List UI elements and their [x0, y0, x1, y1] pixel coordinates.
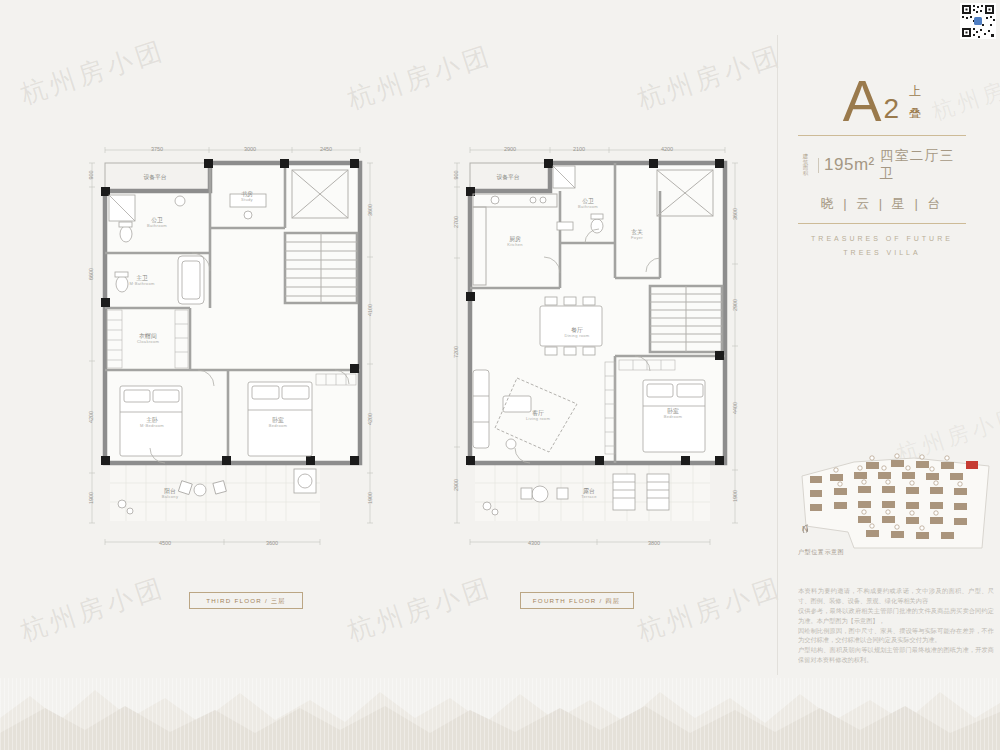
north-arrow-icon [802, 524, 808, 533]
dimension-label: 6600 [87, 268, 93, 280]
watermark: 杭州房小团 [343, 38, 496, 118]
stack-bottom: 叠 [909, 105, 921, 122]
third-floor-tag: THIRD FLOOR / 三层 [189, 592, 303, 609]
divider-rule [798, 135, 966, 136]
dimension-label: 3600 [266, 540, 278, 546]
floorplan-poster: 杭州房小团 杭州房小团 杭州房小团 杭州房小团 杭州房小团 杭州房小团 杭州房小… [0, 0, 1000, 750]
dimension-label: 3000 [244, 146, 256, 152]
floor-tag-cn: 三层 [271, 597, 286, 604]
area-line: 建筑 面积 195m² 四室二厅三卫 [798, 144, 966, 186]
room-label: 厨房Kitchen [507, 236, 523, 247]
dimension-label: 4200 [367, 413, 373, 425]
dimension-label: 2100 [573, 146, 585, 152]
info-panel: A 2 上 叠 建筑 面积 195m² 四室二厅三卫 晓 | 云 | 星 | 台… [798, 76, 966, 259]
dimension-label: 900 [452, 170, 458, 179]
room-label: 设备平台 [143, 173, 166, 180]
watermark: 杭州房小团 [343, 570, 496, 650]
fourth-floor-labels: 设备平台厨房Kitchen公卫Bathroom玄关Foyer餐厅Dining r… [445, 138, 745, 568]
vertical-divider [777, 35, 778, 675]
unit-title: A 2 上 叠 [798, 76, 966, 125]
siteplan-caption: 户型位置示意图 [798, 548, 844, 556]
area-divider [818, 158, 819, 173]
room-label: 设备平台 [496, 173, 519, 180]
dimension-label: 3600 [732, 208, 738, 220]
watermark: 杭州房小团 [16, 33, 169, 113]
room-label: 书房Study [241, 190, 253, 201]
slogan: 晓 | 云 | 星 | 台 [798, 195, 966, 213]
floor-tag-en: FOURTH FLOOR [533, 597, 597, 604]
area-value: 195m² [824, 155, 875, 175]
room-label: 公卫Bathroom [578, 197, 598, 208]
dimension-label: 4100 [367, 304, 373, 316]
qr-code [960, 3, 996, 39]
room-label: 露台Terrace [581, 487, 597, 498]
third-floor-plan: 设备平台书房Study公卫Bathroom主卫M·Bathroom衣帽间Cloa… [80, 138, 380, 568]
disclaimer: 本资料为要约邀请，不构成要约或承诺，文中涉及的面积、户型、尺寸、图例、装修、设备… [798, 586, 994, 664]
room-label: 卧室Bedroom [269, 416, 288, 427]
room-label: 卧室Bedroom [664, 408, 683, 419]
floor-tag-en: THIRD FLOOR [206, 597, 262, 604]
dimension-label: 1900 [367, 492, 373, 504]
dimension-label: 2450 [320, 146, 332, 152]
dimension-label: 2900 [504, 146, 516, 152]
stack-top: 上 [909, 83, 921, 100]
floor-tag-sep: / [600, 597, 603, 604]
unit-stack: 上 叠 [909, 83, 921, 122]
dimension-label: 900 [87, 170, 93, 179]
dimension-label: 2900 [732, 299, 738, 311]
north-indicator: N [802, 524, 808, 533]
fourth-floor-tag: FOURTH FLOOR / 四层 [520, 592, 634, 609]
room-label: 公卫Bathroom [147, 216, 167, 227]
tagline-line2: TREES VILLA [798, 246, 966, 259]
siteplan: N 户型位置示意图 [796, 446, 996, 561]
divider-rule [798, 223, 966, 224]
fourth-floor-plan: 设备平台厨房Kitchen公卫Bathroom玄关Foyer餐厅Dining r… [445, 138, 745, 568]
dimension-label: 4400 [732, 401, 738, 413]
room-label: 玄关Foyer [631, 229, 643, 240]
unit-number: 2 [884, 95, 900, 123]
dimension-label: 4300 [528, 540, 540, 546]
room-label: 主卧M·Bedroom [140, 416, 164, 427]
third-floor-labels: 设备平台书房Study公卫Bathroom主卫M·Bathroom衣帽间Cloa… [80, 138, 380, 568]
mountain-border-decoration [0, 678, 1000, 750]
room-label: 餐厅Dining room [564, 326, 589, 337]
room-label: 衣帽间Cloakroom [136, 332, 158, 343]
unit-letter: A [843, 76, 882, 125]
dimension-label: 1900 [87, 492, 93, 504]
watermark: 杭州房小团 [16, 570, 169, 650]
siteplan-map [796, 446, 996, 561]
dimension-label: 2900 [452, 479, 458, 491]
watermark: 杭州房小团 [633, 38, 786, 118]
taglines: TREASURES OF FUTURE TREES VILLA [798, 232, 966, 259]
room-layout: 四室二厅三卫 [880, 147, 966, 183]
watermark: 杭州房小团 [633, 570, 786, 650]
dimension-label: 3800 [648, 540, 660, 546]
dimension-label: 7200 [452, 346, 458, 358]
dimension-label: 4500 [158, 540, 170, 546]
room-label: 阳台Balcony [162, 487, 178, 498]
dimension-label: 3750 [151, 146, 163, 152]
dimension-label: 4200 [661, 146, 673, 152]
dimension-label: 2700 [452, 216, 458, 228]
floor-tag-sep: / [265, 597, 268, 604]
room-label: 主卫M·Bathroom [129, 275, 154, 286]
dimension-label: 3600 [367, 204, 373, 216]
floor-tag-cn: 四层 [606, 597, 621, 604]
tagline-line1: TREASURES OF FUTURE [798, 232, 966, 245]
disclaimer-text: 本资料为要约邀请，不构成要约或承诺，文中涉及的面积、户型、尺寸、图例、装修、设备… [798, 586, 994, 664]
highlighted-unit-block [966, 461, 978, 469]
dimension-label: 1900 [732, 490, 738, 502]
dimension-label: 4200 [87, 411, 93, 423]
area-prefix: 建筑 面积 [803, 154, 815, 177]
room-label: 客厅Living room [526, 410, 550, 421]
